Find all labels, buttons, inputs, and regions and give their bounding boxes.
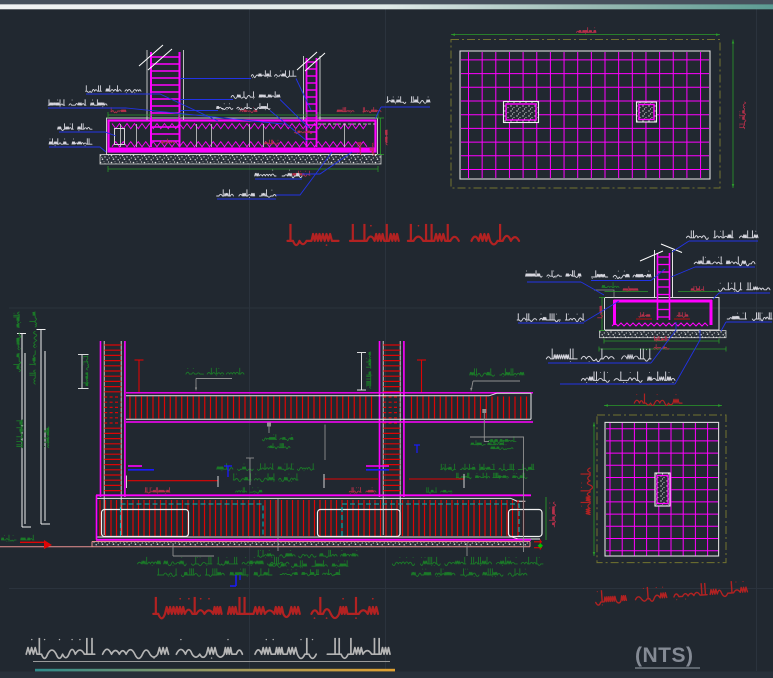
- svg-text:(NTS): (NTS): [635, 644, 694, 667]
